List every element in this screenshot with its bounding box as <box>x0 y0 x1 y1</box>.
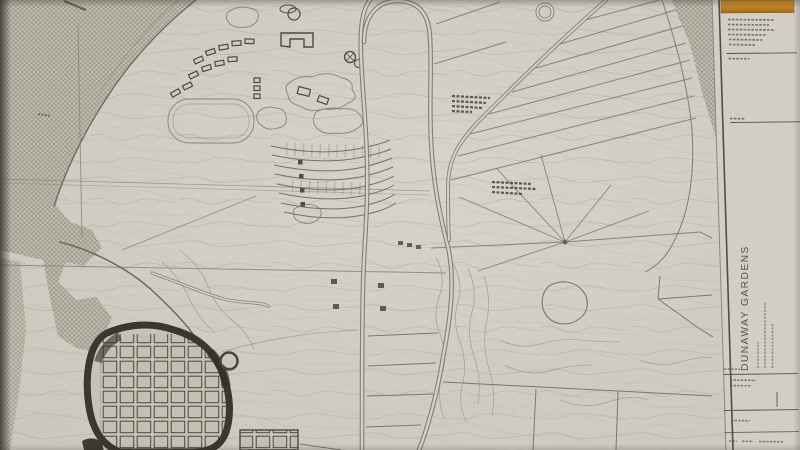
water-feature-circle <box>221 353 238 370</box>
orange-tab <box>721 0 794 13</box>
site-plan-photo: DUNAWAY GARDENS <box>0 0 800 450</box>
bed-grid-east <box>240 430 298 450</box>
site-plan-drawing: DUNAWAY GARDENS <box>0 0 800 450</box>
project-title: DUNAWAY GARDENS <box>740 245 751 371</box>
title-block: DUNAWAY GARDENS <box>712 0 800 450</box>
